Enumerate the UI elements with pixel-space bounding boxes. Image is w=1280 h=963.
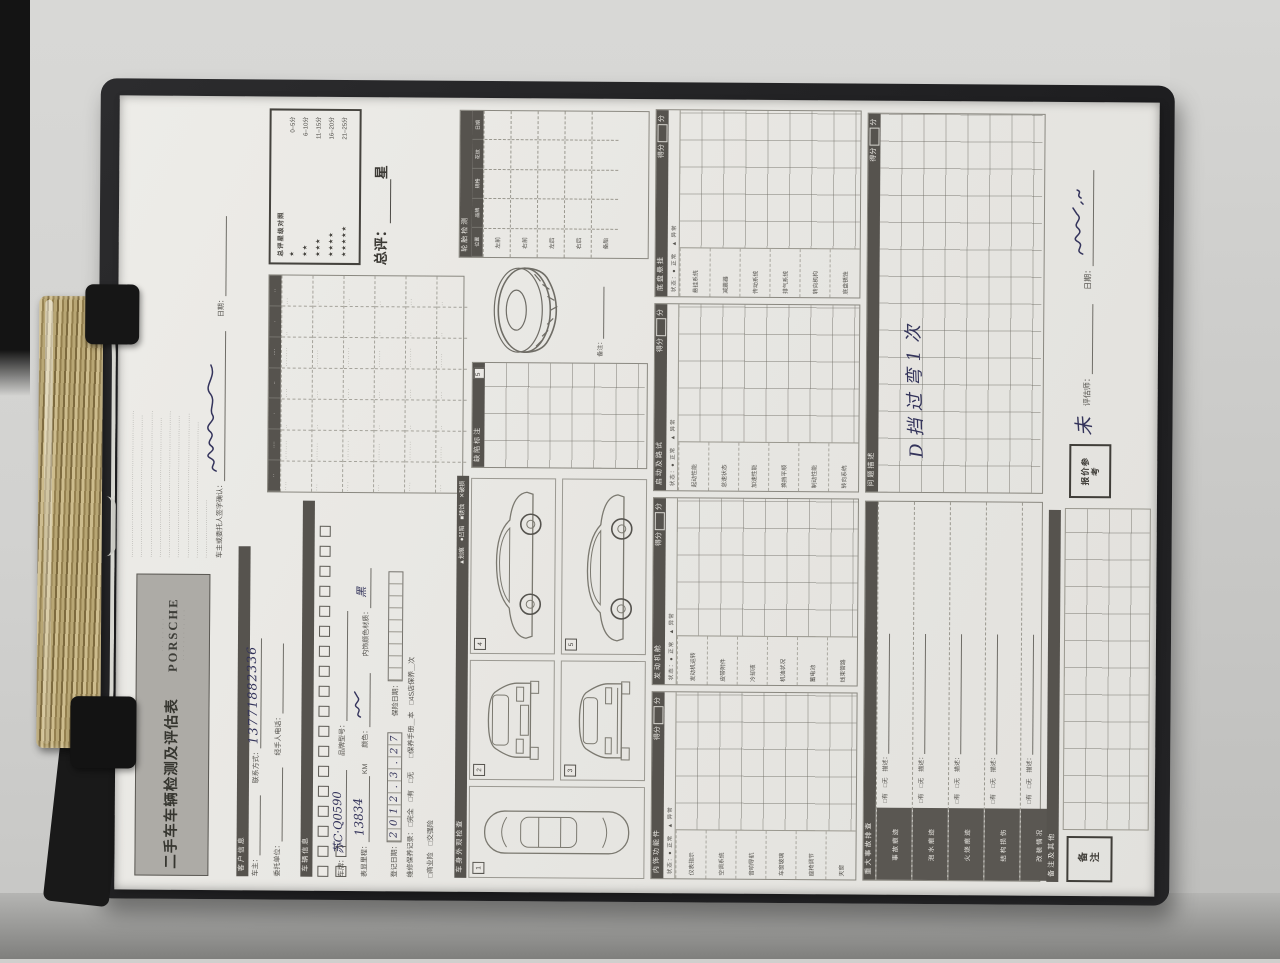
check-block: 内饰功能件 得分分 状态：● 正常 ▲ 异常 仪表指示空调系统音响导航车窗玻璃座…	[650, 691, 857, 880]
score-table-row: ··························	[311, 276, 344, 492]
regdate-digit: 0	[388, 817, 401, 829]
equipment-checkbox	[318, 706, 329, 717]
score-table-header: ················	[268, 275, 282, 491]
vehicle-fields: 车牌：苏C·Q0590 品牌型号： 表显里程：13834 KM 颜色： 内饰颜色…	[336, 501, 449, 878]
cell	[565, 200, 591, 230]
model-line	[338, 611, 348, 721]
remarks-box: 备注	[1066, 836, 1112, 882]
score-table-header-cell: ····	[268, 430, 280, 461]
cell	[511, 140, 537, 170]
score-box	[869, 128, 879, 146]
star-icons: ★★★★★	[339, 225, 352, 257]
car-top-view: 1	[468, 786, 645, 879]
cell: ·······	[312, 431, 342, 462]
cell: ···	[375, 369, 405, 400]
equipment-checkbox	[318, 766, 329, 777]
car-side-right-view: 5	[561, 478, 647, 655]
tire-position: 备胎	[592, 229, 618, 258]
tire-illustration-block: 备注：	[474, 264, 649, 357]
accident-options: □有 □无 描述：	[919, 754, 925, 803]
check-grid	[677, 498, 858, 636]
cell: ····	[344, 369, 374, 400]
check-item-label: 悬挂系统	[679, 248, 709, 296]
agency-line	[274, 767, 284, 841]
tire-icon	[474, 264, 585, 357]
price-reference-label: 报价参考	[1080, 456, 1100, 486]
tire-column-header: 品牌	[472, 198, 483, 227]
owner-signature-scribble	[204, 353, 223, 473]
equipment-checkbox	[320, 526, 331, 537]
cell	[511, 170, 537, 200]
clip-wire-bend	[96, 496, 116, 556]
regdate-digit: 3	[388, 769, 401, 781]
cell: ···	[313, 369, 343, 400]
car-top-view-icon	[476, 799, 636, 866]
plate-label: 车牌：	[338, 856, 345, 877]
date-handwriting-scribble	[1069, 186, 1091, 256]
regdate-digit: .	[388, 757, 401, 769]
legend-row: ★★★★★ 21–25分	[339, 117, 353, 257]
regdate-digit: .	[388, 781, 401, 793]
cell	[592, 141, 618, 171]
plate-line: 苏C·Q0590	[337, 770, 347, 856]
score-unit: 分	[655, 309, 667, 316]
equipment-checkbox	[319, 686, 330, 697]
accident-row: 事故痕迹 □有 □无 描述：	[875, 502, 914, 880]
cell: ··	[344, 307, 374, 338]
tire-row: 备胎	[591, 112, 619, 258]
disclaimer-text: ········································…	[129, 107, 216, 558]
check-item-label: 转向机构	[799, 249, 829, 297]
insurance-date-cell	[389, 632, 402, 644]
tire-note-label: 备注：	[598, 339, 604, 357]
accident-row-label: 事故痕迹	[876, 808, 912, 880]
cell: ··	[343, 400, 373, 431]
tire-table-header: 位置品牌规格花纹日期	[472, 111, 484, 257]
tire-row: 右后	[564, 111, 592, 257]
legend-title: 总评星级对照	[275, 116, 286, 256]
section-customer-label: 客户信息	[236, 835, 248, 871]
view-number: 1	[472, 862, 484, 874]
owner-signature-row: 车主或委托人签字确认： 日期：	[215, 108, 236, 558]
cell: ··	[405, 400, 435, 431]
inspection-form: 二手车车辆检测及评估表 · · · · · · · · PORSCHE · · …	[114, 95, 1160, 896]
mileage-unit: KM	[362, 764, 369, 775]
section-vehicle-info: 车辆信息	[300, 501, 315, 877]
overall-value-line	[378, 179, 391, 223]
photo-scene: 二手车车辆检测及评估表 · · · · · · · · PORSCHE · · …	[0, 0, 1280, 959]
insurance-date-cell	[389, 644, 402, 656]
car-side-view-icon	[481, 486, 544, 646]
phone-handwriting: 13771882336	[244, 646, 261, 745]
score-box	[653, 706, 663, 724]
check-item-label: 线束管路	[827, 637, 857, 685]
equipment-checkbox	[318, 786, 329, 797]
score-label: 得分	[652, 726, 664, 740]
accident-row-label: 结构损伤	[984, 808, 1020, 880]
cell: ······	[437, 339, 467, 370]
cell	[565, 170, 591, 200]
equipment-checkbox	[317, 866, 328, 877]
cell: ········	[405, 431, 435, 462]
cell: ········	[281, 431, 311, 462]
cell	[565, 111, 591, 141]
cell	[484, 140, 510, 170]
sign-date-label: 日期：	[218, 296, 225, 317]
score-range: 16–20分	[326, 117, 339, 140]
score-table-row: ··························	[373, 276, 406, 492]
car-diagrams: 1 2	[468, 476, 647, 879]
maintenance-label: 维修保养记录：	[407, 828, 414, 877]
equipment-checkbox	[319, 586, 330, 597]
accident-desc-line	[916, 634, 926, 754]
accident-options: □有 □无 描述：	[991, 754, 997, 803]
cell	[484, 170, 510, 200]
mileage-handwriting: 13834	[351, 798, 367, 837]
cell: ···	[344, 276, 374, 307]
model-label: 品牌型号：	[339, 721, 346, 756]
cell: ··	[436, 401, 466, 432]
check-items: 仪表指示空调系统音响导航车窗玻璃座椅调节天窗	[675, 829, 855, 879]
agent-label: 经手人电话：	[275, 714, 282, 756]
regdate-digit: 2	[388, 793, 401, 805]
cell: ···	[282, 276, 312, 307]
star-icons: ★★★	[313, 238, 326, 257]
equipment-checkbox	[319, 566, 330, 577]
mileage-line: 13834	[361, 776, 370, 842]
check-item-label: 车窗玻璃	[765, 831, 795, 879]
tire-section-label: 轮胎检测	[460, 216, 472, 252]
cell: ··	[313, 307, 343, 338]
equipment-checkbox	[320, 546, 331, 557]
accident-options: □有 □无 描述：	[1027, 754, 1033, 803]
check-item-label: 发动机运转	[677, 636, 707, 684]
cell: ·······	[374, 431, 404, 462]
interior-line: 黑	[362, 568, 371, 608]
check-item-label: 冷却液	[737, 637, 767, 685]
mileage-label: 表显里程：	[361, 842, 368, 877]
cell: ··	[406, 307, 436, 338]
owner-value-line	[251, 795, 260, 855]
form-header-band: 二手车车辆检测及评估表 · · · · · · · · PORSCHE · · …	[134, 574, 210, 877]
issue-grid: D挡过弯1次	[878, 114, 1043, 493]
color-handwriting-scribble	[351, 689, 365, 719]
insurance-label: 保险日期：	[390, 681, 400, 716]
cell	[538, 199, 564, 229]
tire-column-header: 日期	[472, 111, 483, 140]
insurance-options: □商业险 □交强险	[427, 820, 434, 878]
check-blocks: 内饰功能件 得分分 状态：● 正常 ▲ 异常 仪表指示空调系统音响导航车窗玻璃座…	[650, 109, 861, 880]
star-rating-legend: 总评星级对照 ★ 0–5分 ★★ 6–10分	[269, 108, 362, 265]
accident-row: 结构损伤 □有 □无 描述：	[983, 502, 1022, 880]
check-item-label: 加速性能	[738, 443, 768, 491]
tire-table: 轮胎检测 位置品牌规格花纹日期 左前	[459, 110, 650, 259]
score-table-row: ·······························	[404, 276, 437, 492]
tire-column-header: 花纹	[472, 140, 483, 169]
remarks-area	[1063, 508, 1151, 831]
accident-section-label: 重大事故排查	[863, 821, 875, 875]
check-block-title: 底盘悬挂	[655, 255, 667, 291]
tire-row: 左后	[537, 111, 565, 257]
section-remarks: 备注及其他	[1046, 510, 1061, 882]
cell: ········	[344, 338, 374, 369]
check-item-label: 转向系统	[828, 443, 858, 491]
cell: ····	[406, 369, 436, 400]
accident-row: 泡水痕迹 □有 □无 描述：	[911, 502, 950, 880]
phone-label: 联系方式：	[253, 748, 260, 783]
tire-note-line	[595, 287, 604, 339]
cell: ··	[313, 276, 343, 307]
accident-desc-line	[1024, 634, 1034, 754]
agent-line	[274, 644, 283, 714]
check-item-label: 仪表指示	[675, 830, 705, 878]
phone-line: 13771882336	[252, 638, 262, 748]
score-range: 21–25分	[339, 117, 352, 140]
check-item-label: 天窗	[825, 831, 855, 879]
remarks-bar-label: 备注及其他	[1046, 832, 1058, 877]
footer-date-line	[1085, 170, 1095, 266]
insurance-date-cell	[389, 656, 402, 668]
cell	[592, 200, 618, 230]
check-block: 启动及路试 得分分 状态：● 正常 ▲ 异常 起动性能怠速状态加速性能换挡平顺制…	[653, 303, 860, 492]
score-table-row: ························	[435, 277, 468, 493]
cell	[538, 170, 564, 200]
accident-row-label: 火烧痕迹	[948, 808, 984, 880]
check-block-title: 发动机舱	[653, 643, 665, 679]
score-table-header-cell: ·	[269, 306, 281, 337]
score-table-header-cell: ····	[269, 337, 281, 368]
view-number: 5	[473, 368, 484, 379]
tire-row: 左前	[483, 111, 511, 257]
check-item-label: 怠速状态	[708, 442, 738, 490]
cell: ··	[437, 277, 467, 308]
check-item-label: 传动系统	[739, 249, 769, 297]
cell: ··	[282, 307, 312, 338]
star-icons: ★★	[300, 244, 313, 257]
car-side-left-view: 4	[470, 478, 556, 655]
damage-symbols-legend: ▲划痕 ●凹陷 ■锈蚀 ✕破损	[457, 481, 470, 565]
legend-row: ★ 0–5分	[287, 117, 301, 257]
check-grid	[676, 692, 857, 830]
cell: ·······	[375, 338, 405, 369]
view-number: 4	[474, 638, 486, 650]
insurance-date-cell	[389, 584, 402, 596]
equipment-checkbox	[319, 606, 330, 617]
check-block-title: 启动及路试	[654, 440, 666, 485]
view-number: 2	[473, 764, 485, 776]
check-item-label: 制动性能	[798, 443, 828, 491]
cell	[484, 199, 510, 229]
damage-marking-panel: 缺陷标注5	[471, 362, 648, 469]
accident-options: □有 □无 描述：	[883, 753, 889, 802]
equipment-checkbox	[318, 826, 329, 837]
color-line	[361, 673, 370, 727]
cell	[538, 111, 564, 141]
plate-handwriting: 苏C·Q0590	[329, 791, 347, 854]
score-box	[656, 318, 666, 336]
insurance-cells	[388, 571, 404, 681]
cell: ···	[374, 462, 404, 492]
score-table-header-cell: ··	[268, 461, 280, 492]
score-label: 得分	[656, 144, 668, 158]
photo-edge-fade	[0, 350, 30, 396]
section-vehicle-label: 车辆信息	[300, 836, 312, 872]
interior-label: 内饰颜色材质：	[363, 608, 370, 657]
accident-desc-line	[880, 633, 890, 753]
brand-fine-print-bottom: · · · · · · · · · · · ·	[180, 579, 187, 691]
car-side-view-icon	[572, 487, 635, 647]
clip-arm-bottom	[70, 696, 137, 768]
appraiser-label: 评估师：	[1083, 374, 1092, 406]
cell: ········	[343, 431, 373, 462]
score-table-row: ·······························	[280, 276, 313, 492]
check-item-label: 蓄电池	[797, 637, 827, 685]
disclaimer-line: ···························	[203, 108, 215, 558]
footer-date-label: 日期：	[1083, 266, 1092, 290]
equipment-checkbox	[318, 726, 329, 737]
porsche-logo-block: · · · · · · · · PORSCHE · · · · · · · · …	[159, 579, 187, 691]
cell	[484, 111, 510, 141]
check-item-label: 座椅调节	[795, 831, 825, 879]
legend-row: ★★★★ 16–20分	[326, 117, 340, 257]
regdate-label: 登记日期：	[389, 842, 399, 877]
cell	[592, 170, 618, 200]
tire-column-header: 位置	[472, 228, 483, 257]
car-front-view-icon	[480, 675, 545, 765]
cell: ··	[375, 276, 405, 307]
check-item-label: 机油状况	[767, 637, 797, 685]
damage-panel-label: 缺陷标注	[472, 426, 484, 462]
accident-inspection-table: 重大事故排查 事故痕迹 □有 □无 描述： 泡水痕迹 □有 □无 描述：	[862, 501, 1043, 882]
clipboard-group: 二手车车辆检测及评估表 · · · · · · · · PORSCHE · · …	[0, 0, 1280, 963]
insurance-date-cell	[389, 668, 402, 680]
tire-position: 右后	[565, 229, 591, 258]
score-table-row: ·······························	[342, 276, 375, 492]
appraiser-line	[1084, 304, 1093, 374]
damage-grid	[484, 363, 645, 468]
tire-row: 右前	[510, 111, 538, 257]
check-items: 悬挂系统减震器传动系统排气系统转向机构底盘锈蚀	[679, 247, 859, 297]
color-label: 颜色：	[362, 727, 369, 748]
equipment-checkbox	[318, 746, 329, 757]
form-title: 二手车车辆检测及评估表	[163, 691, 181, 875]
regdate-digit: 7	[388, 733, 401, 745]
regdate-digit: 2	[388, 829, 401, 841]
cell: ···	[312, 462, 342, 492]
cell: ··	[374, 400, 404, 431]
overall-unit: 星	[373, 165, 389, 179]
score-unit: 分	[653, 697, 665, 704]
tire-position: 左前	[484, 229, 510, 258]
maintenance-options: □完全 □有 □无	[408, 772, 415, 827]
score-unit: 分	[654, 503, 666, 510]
overall-rating-row: 总评：星	[371, 109, 392, 265]
cell	[592, 112, 618, 142]
accident-row: 火烧痕迹 □有 □无 描述：	[947, 502, 986, 880]
check-item-label: 音响导航	[735, 831, 765, 879]
score-unit: 分	[869, 119, 881, 126]
cell: ··	[437, 308, 467, 339]
interior-handwriting: 黑	[353, 587, 369, 598]
check-item-label: 减震器	[709, 249, 739, 297]
cell	[565, 141, 591, 171]
cell: ····	[282, 369, 312, 400]
clip-arm-top	[85, 284, 139, 344]
score-table-header-cell: ·	[268, 399, 280, 430]
score-range: 0–5分	[288, 117, 301, 133]
score-label: 得分	[655, 338, 667, 352]
check-item-label: 皮带附件	[707, 636, 737, 684]
score-box	[657, 124, 667, 142]
photo-edge-dark-left	[0, 0, 30, 350]
tire-position: 左后	[538, 229, 564, 258]
section-exterior-label: 车身外观检查	[454, 819, 466, 873]
tire-column-header: 规格	[472, 169, 483, 198]
score-criteria-table: ················ ·······················…	[267, 274, 465, 493]
equipment-checkbox	[319, 666, 330, 677]
accident-row-label: 泡水痕迹	[912, 808, 948, 880]
overall-label: 总评：	[373, 223, 389, 265]
accident-options: □有 □无 描述：	[955, 754, 961, 803]
regdate-digit: 2	[388, 745, 401, 757]
score-table-header-cell: ··	[269, 368, 281, 399]
tire-position: 右前	[511, 229, 537, 258]
cell: ··	[375, 307, 405, 338]
appraiser-row: 评估师： 日期：	[1082, 114, 1095, 406]
cell: ···	[437, 370, 467, 401]
score-table-header-cell: ··	[269, 275, 281, 306]
score-range: 11–15分	[313, 117, 326, 139]
cell: ····	[405, 462, 435, 492]
price-reference-box: 报价参考	[1069, 444, 1111, 498]
cell: ··	[312, 400, 342, 431]
remarks-label: 备注	[1077, 852, 1101, 867]
car-front-view: 2	[469, 660, 555, 781]
accident-desc-line	[952, 634, 962, 754]
check-grid	[678, 304, 859, 442]
check-item-label: 空调系统	[705, 830, 735, 878]
cell: ····	[281, 462, 311, 492]
issue-description-panel: 问题描述 得分分 D挡过弯1次	[865, 113, 1046, 494]
check-grid	[680, 110, 861, 248]
insurance-date-cell	[389, 620, 402, 632]
tire-table-rows: 左前 右前	[483, 111, 619, 258]
issue-section-label: 问题描述	[866, 451, 878, 487]
car-rear-view-icon	[571, 676, 636, 766]
equipment-checkbox	[318, 806, 329, 817]
check-item-label: 换挡平顺	[768, 443, 798, 491]
score-label: 得分	[654, 532, 666, 546]
check-block: 发动机舱 得分分 状态：● 正常 ▲ 异常 发动机运转皮带附件冷却液机油状况蓄电…	[652, 497, 859, 686]
check-block: 底盘悬挂 得分分 状态：● 正常 ▲ 异常 悬挂系统减震器传动系统排气系统转向机…	[654, 109, 861, 298]
check-item-label: 起动性能	[678, 442, 708, 490]
cell: ······	[436, 432, 466, 463]
sign-confirm-label: 车主或委托人签字确认：	[217, 481, 225, 558]
check-item-label: 底盘锈蚀	[829, 249, 859, 297]
insurance-date-cell	[389, 572, 402, 584]
owner-label: 车主：	[252, 855, 259, 876]
regdate-cells: 2012.3.27	[387, 732, 403, 842]
star-icons: ★★★★	[326, 231, 339, 257]
check-item-label: 排气系统	[769, 249, 799, 297]
cell	[511, 199, 537, 229]
score-table-body: ······························· ········…	[280, 276, 468, 493]
cell: ··	[281, 400, 311, 431]
score-unit: 分	[657, 115, 669, 122]
brand-wordmark: PORSCHE	[165, 579, 181, 691]
agency-label: 委托单位：	[274, 841, 281, 876]
maintenance-options-2: □保养手册＿本 □4S店保养＿次	[408, 657, 416, 758]
